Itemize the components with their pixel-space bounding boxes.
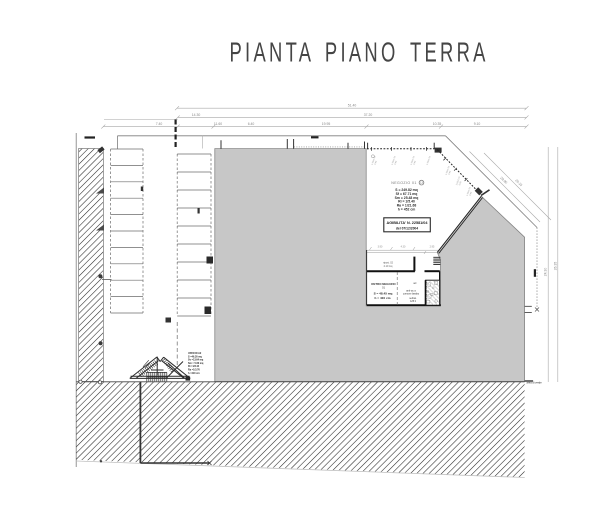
svg-text:01: 01 [382,286,386,290]
svg-text:6.40: 6.40 [248,122,255,126]
svg-text:AGIBILITA' N. 22581/04: AGIBILITA' N. 22581/04 [387,221,428,225]
svg-text:125 lt: 125 lt [410,300,416,303]
svg-text:2.95: 2.95 [430,246,435,249]
svg-text:7.40: 7.40 [156,122,163,126]
svg-text:2.10 mq: 2.10 mq [384,265,393,268]
svg-text:NEGOZIO 01: NEGOZIO 01 [391,181,417,185]
svg-text:24.30: 24.30 [544,268,548,277]
svg-text:51.40: 51.40 [348,104,357,108]
svg-text:19.95: 19.95 [322,122,331,126]
svg-text:PIANTA PIANO TERRA: PIANTA PIANO TERRA [230,37,489,68]
svg-text:h =410 cm: h =410 cm [188,372,200,375]
svg-text:26.35: 26.35 [553,262,557,271]
svg-text:S = 48.45 mq: S = 48.45 mq [374,292,393,296]
svg-text:10.35: 10.35 [433,122,442,126]
svg-text:14.30: 14.30 [192,113,201,117]
svg-text:37.20: 37.20 [364,113,373,117]
svg-text:4.30: 4.30 [401,246,406,249]
svg-text:del 07/12/2004: del 07/12/2004 [396,226,418,230]
svg-text:h = 410 cm: h = 410 cm [375,296,391,300]
svg-text:11.60: 11.60 [214,122,222,126]
svg-text:comune lavabo: comune lavabo [403,292,420,295]
svg-text:h = 452 cm: h = 452 cm [398,208,415,212]
svg-text:9.10: 9.10 [474,122,481,126]
svg-text:3.90: 3.90 [378,246,383,249]
